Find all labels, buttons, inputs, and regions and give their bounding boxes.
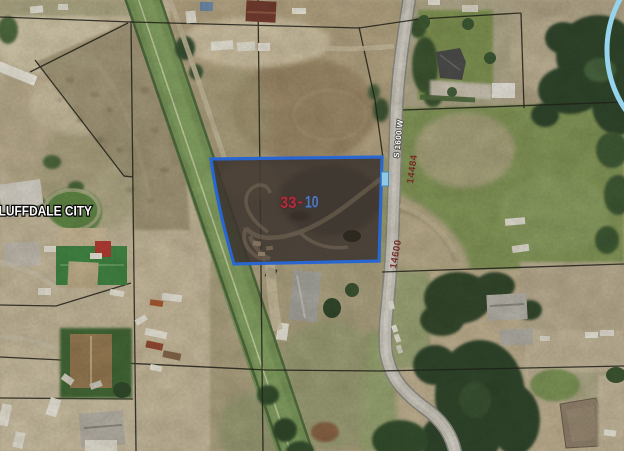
svg-text:BLUFFDALE CITY: BLUFFDALE CITY [0,204,92,219]
svg-text:-: - [298,193,304,211]
svg-text:10: 10 [305,194,319,212]
svg-text:33: 33 [280,194,297,212]
